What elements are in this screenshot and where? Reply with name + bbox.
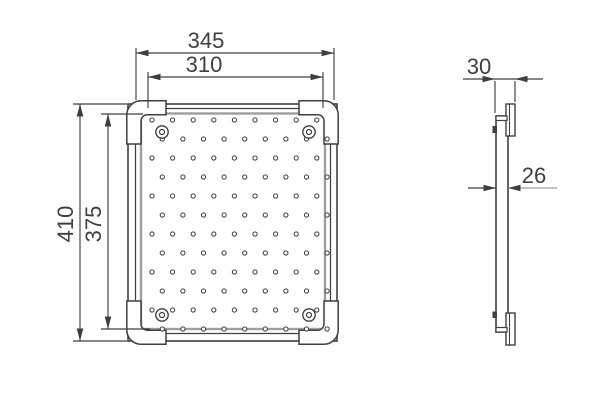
perforation-dot xyxy=(181,327,185,331)
perforation-dot xyxy=(171,194,175,198)
perforation-dot xyxy=(212,308,216,312)
perforation-dot xyxy=(263,327,267,331)
perforation-dot xyxy=(294,308,298,312)
dim-height-inner: 375 xyxy=(81,114,150,329)
arrowhead xyxy=(105,114,112,127)
arrowhead xyxy=(105,317,112,330)
side-view xyxy=(493,104,516,345)
dim-thickness-inner-label: 26 xyxy=(522,163,546,188)
perforation-dot xyxy=(171,270,175,274)
perforation-dot xyxy=(263,289,267,293)
perforation-dot xyxy=(232,270,236,274)
perforation-dot xyxy=(315,270,319,274)
rivet xyxy=(307,130,312,135)
perforation-dot xyxy=(160,251,164,255)
dim-height-outer-label: 410 xyxy=(53,206,78,243)
perforation-dot xyxy=(325,137,329,141)
perforation-dot xyxy=(284,175,288,179)
front-view xyxy=(127,101,338,344)
perforation-dot xyxy=(212,232,216,236)
perforation-dot xyxy=(304,289,308,293)
side-bottom-lip xyxy=(496,328,507,333)
dim-width-inner-label: 310 xyxy=(186,52,223,77)
perforation-dot xyxy=(253,118,257,122)
perforation-dot xyxy=(294,194,298,198)
perforation-dot xyxy=(171,156,175,160)
perforation-dot xyxy=(243,251,247,255)
perforation-dot xyxy=(263,251,267,255)
arrowhead xyxy=(77,329,84,342)
perforation-dot xyxy=(222,251,226,255)
perforation-dot xyxy=(222,137,226,141)
perforation-dot xyxy=(201,137,205,141)
rivet xyxy=(307,313,312,318)
arrowhead xyxy=(136,50,149,57)
side-rivet-bottom xyxy=(493,312,498,319)
perforation-dot xyxy=(253,270,257,274)
perforation-dot xyxy=(284,251,288,255)
perforation-dot xyxy=(181,175,185,179)
perforation-dot xyxy=(212,156,216,160)
perforation-dot xyxy=(212,194,216,198)
perforation-dot xyxy=(304,213,308,217)
perforation-dot xyxy=(232,232,236,236)
arrowhead xyxy=(508,185,521,192)
perforation-dot xyxy=(191,270,195,274)
perforation-dot xyxy=(201,251,205,255)
perforation-dot xyxy=(201,213,205,217)
technical-drawing-canvas: 345 310 410 375 xyxy=(0,0,600,407)
perforation-dot xyxy=(243,327,247,331)
perforation-dot xyxy=(253,156,257,160)
perforation-dot xyxy=(284,213,288,217)
perforation-dot xyxy=(222,289,226,293)
perforation-dot xyxy=(243,289,247,293)
perforation-dot xyxy=(325,213,329,217)
perforation-dot xyxy=(294,270,298,274)
perforation-dot xyxy=(274,232,278,236)
perforation-dot xyxy=(191,194,195,198)
arrowhead xyxy=(311,74,324,81)
perforation-dot xyxy=(222,213,226,217)
perforation-dot xyxy=(263,137,267,141)
perforation-dot xyxy=(232,156,236,160)
perforation-dot xyxy=(181,137,185,141)
perforation-dot xyxy=(263,213,267,217)
perforation-dot xyxy=(171,232,175,236)
perforation-dot xyxy=(294,156,298,160)
perforation-dot xyxy=(274,156,278,160)
dim-width-outer: 345 xyxy=(136,28,334,100)
perforation-dot xyxy=(315,194,319,198)
perforation-dot xyxy=(315,156,319,160)
dim-height-inner-label: 375 xyxy=(81,206,106,243)
perforation-dot xyxy=(274,118,278,122)
perforation-dot xyxy=(191,232,195,236)
perforation-dot xyxy=(232,194,236,198)
perforation-dot xyxy=(243,175,247,179)
dim-width-outer-label: 345 xyxy=(188,28,225,53)
dim-thickness-outer: 30 xyxy=(463,54,543,113)
perforation-dot xyxy=(315,118,319,122)
dimension-drawing: 345 310 410 375 xyxy=(0,0,600,407)
perforation-dot xyxy=(232,308,236,312)
perforation-dot xyxy=(325,251,329,255)
perforation-dot xyxy=(304,327,308,331)
perforation-dot xyxy=(315,308,319,312)
perforation-dot xyxy=(171,118,175,122)
perforation-dot xyxy=(304,175,308,179)
perforation-dot xyxy=(191,156,195,160)
perforation-dot xyxy=(294,118,298,122)
rivet xyxy=(160,313,165,318)
perforation-dot xyxy=(160,289,164,293)
perforation-dot xyxy=(160,175,164,179)
perforation-dot xyxy=(315,232,319,236)
perforation-dot xyxy=(191,308,195,312)
dim-thickness-inner: 26 xyxy=(468,163,557,191)
perforation-dot xyxy=(191,118,195,122)
side-plate-profile xyxy=(496,116,508,332)
perforation-dot xyxy=(304,251,308,255)
perforation-dot xyxy=(201,327,205,331)
perforation-dot xyxy=(253,232,257,236)
perforation-dot xyxy=(243,137,247,141)
arrowhead xyxy=(484,185,497,192)
dim-width-inner: 310 xyxy=(148,52,323,108)
plate-surface xyxy=(141,114,325,330)
perforation-dot xyxy=(201,289,205,293)
perforation-dot xyxy=(150,308,154,312)
perforation-dot xyxy=(150,194,154,198)
perforation-dot xyxy=(222,175,226,179)
perforation-dot xyxy=(201,175,205,179)
arrowhead xyxy=(515,76,528,83)
perforation-dot xyxy=(263,175,267,179)
perforation-dot xyxy=(212,270,216,274)
perforation-dot xyxy=(284,327,288,331)
arrowhead xyxy=(322,50,335,57)
arrowhead xyxy=(77,104,84,117)
perforation-dot xyxy=(150,118,154,122)
perforation-dot xyxy=(274,270,278,274)
perforation-dot xyxy=(284,137,288,141)
perforation-dot xyxy=(243,213,247,217)
arrowhead xyxy=(148,74,161,81)
perforation-dot xyxy=(274,194,278,198)
perforation-dot xyxy=(222,327,226,331)
perforation-dot xyxy=(325,175,329,179)
perforation-dot xyxy=(181,289,185,293)
perforation-dot xyxy=(150,156,154,160)
perforation-dot xyxy=(150,232,154,236)
perforation-dot xyxy=(160,327,164,331)
perforation-dot xyxy=(294,232,298,236)
perforation-dot xyxy=(160,213,164,217)
rivet xyxy=(160,130,165,135)
perforation-dot xyxy=(150,270,154,274)
perforation-dot xyxy=(253,308,257,312)
perforation-dot xyxy=(232,118,236,122)
perforation-dot xyxy=(325,327,329,331)
perforation-dot xyxy=(212,118,216,122)
perforation-dot xyxy=(274,308,278,312)
side-top-lip xyxy=(496,116,507,121)
perforation-dot xyxy=(171,308,175,312)
perforation-dot xyxy=(284,289,288,293)
side-rivet-top xyxy=(493,126,498,133)
dim-thickness-outer-label: 30 xyxy=(467,54,491,79)
perforation-dot xyxy=(253,194,257,198)
perforation-dot xyxy=(325,289,329,293)
perforation-dot xyxy=(181,251,185,255)
perforation-dot xyxy=(181,213,185,217)
